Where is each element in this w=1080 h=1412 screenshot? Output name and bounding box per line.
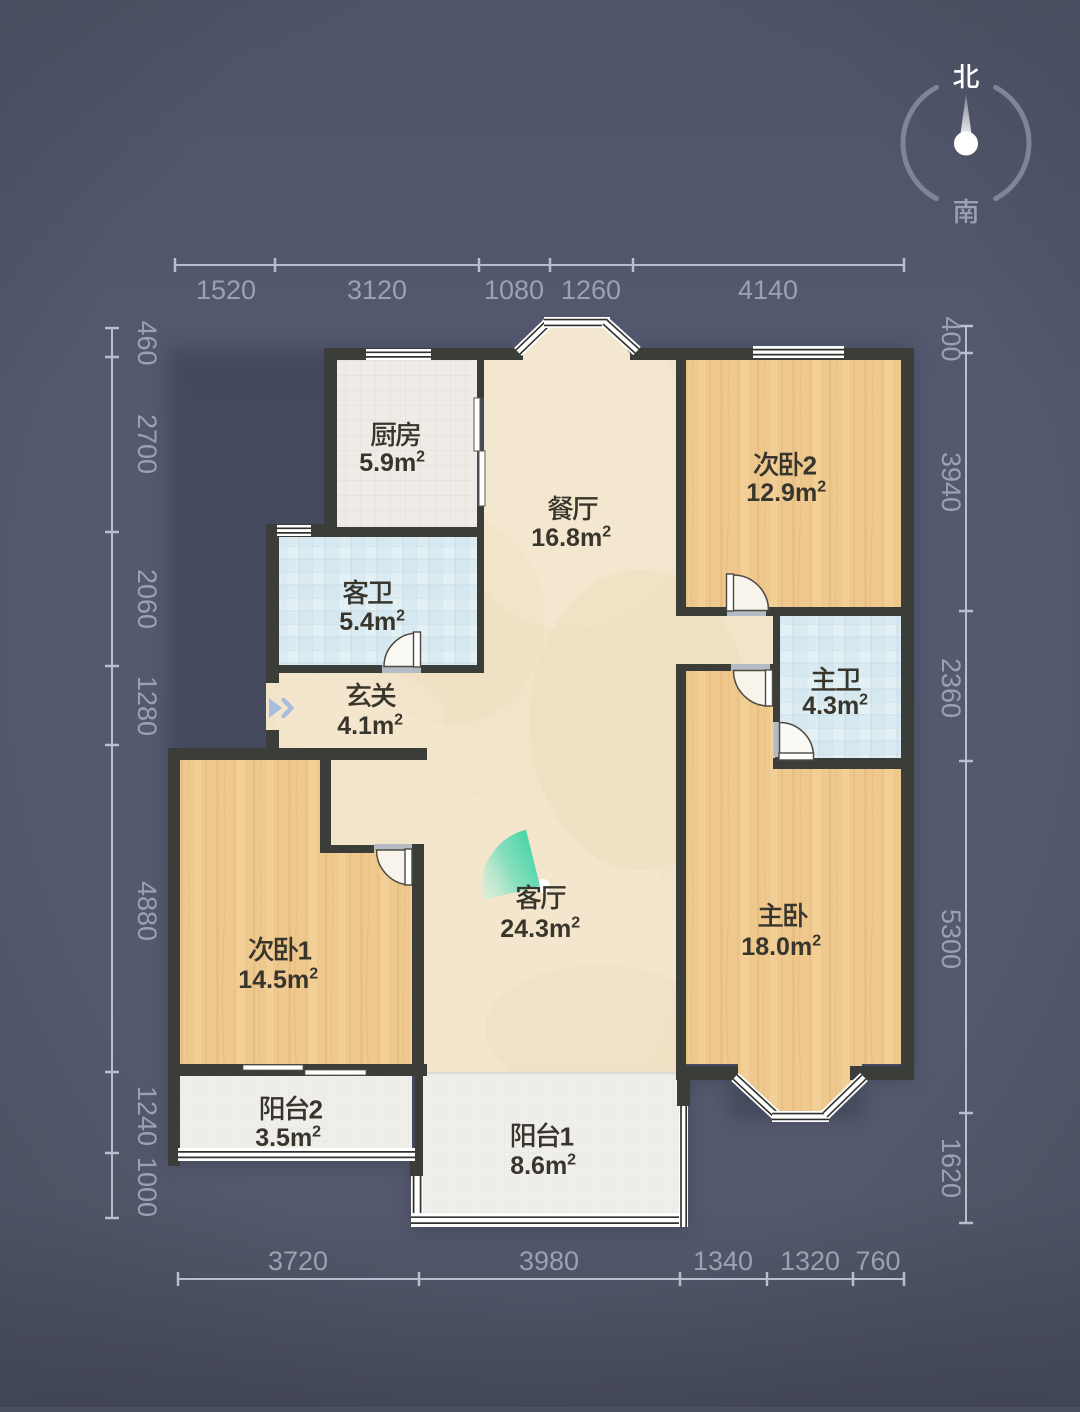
svg-text:3120: 3120 (347, 275, 407, 305)
svg-text:5.4m2: 5.4m2 (339, 607, 405, 636)
svg-text:1260: 1260 (561, 275, 621, 305)
svg-text:3940: 3940 (936, 452, 966, 512)
svg-text:2: 2 (803, 452, 817, 480)
svg-text:14.5m2: 14.5m2 (238, 965, 318, 994)
svg-text:2060: 2060 (132, 569, 162, 629)
svg-text:1: 1 (560, 1123, 574, 1151)
svg-text:1340: 1340 (693, 1246, 753, 1276)
svg-text:5300: 5300 (936, 909, 966, 969)
svg-text:18.0m2: 18.0m2 (741, 932, 821, 961)
svg-text:1: 1 (298, 937, 312, 965)
svg-text:4140: 4140 (738, 275, 798, 305)
svg-text:4880: 4880 (132, 881, 162, 941)
svg-text:4.3m2: 4.3m2 (802, 691, 868, 720)
svg-text:24.3m2: 24.3m2 (500, 914, 580, 943)
svg-text:2: 2 (309, 1096, 323, 1124)
svg-text:1620: 1620 (936, 1138, 966, 1198)
svg-text:1080: 1080 (484, 275, 544, 305)
svg-text:2700: 2700 (132, 414, 162, 474)
svg-text:3720: 3720 (268, 1246, 328, 1276)
svg-text:1520: 1520 (196, 275, 256, 305)
svg-text:2360: 2360 (936, 658, 966, 718)
svg-text:16.8m2: 16.8m2 (531, 523, 611, 552)
svg-text:4.1m2: 4.1m2 (337, 711, 403, 740)
svg-text:3980: 3980 (519, 1246, 579, 1276)
svg-text:1320: 1320 (780, 1246, 840, 1276)
svg-text:12.9m2: 12.9m2 (746, 478, 826, 507)
svg-text:760: 760 (855, 1246, 900, 1276)
svg-text:8.6m2: 8.6m2 (510, 1151, 576, 1180)
svg-text:1280: 1280 (132, 676, 162, 736)
svg-text:460: 460 (132, 320, 162, 365)
svg-text:1000: 1000 (132, 1157, 162, 1217)
svg-text:5.9m2: 5.9m2 (359, 448, 425, 477)
svg-text:400: 400 (936, 316, 966, 361)
svg-text:3.5m2: 3.5m2 (255, 1123, 321, 1152)
svg-text:1240: 1240 (132, 1086, 162, 1146)
